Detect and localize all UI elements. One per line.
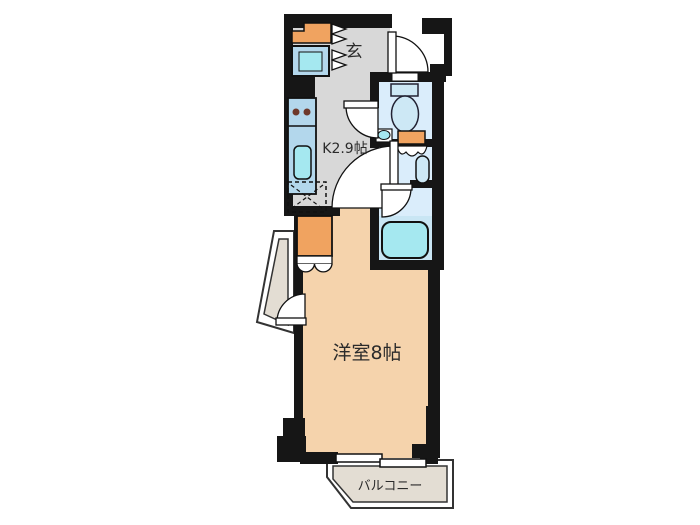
- floor-plan-canvas: 玄 K2.9帖 洋室8帖 バルコニー: [0, 0, 700, 525]
- entrance-door: [388, 32, 428, 73]
- water-heater: [416, 156, 429, 183]
- wall-right-upper: [432, 72, 444, 268]
- main-room-label: 洋室8帖: [332, 342, 401, 364]
- kitchen-label: K2.9帖: [322, 141, 367, 157]
- entrance-label: 玄: [346, 42, 363, 62]
- wall-right-lower: [426, 406, 440, 458]
- bathtub: [382, 222, 428, 258]
- storage-box: [292, 46, 329, 76]
- stove-burner: [293, 109, 300, 116]
- stove-burner: [304, 109, 311, 116]
- sink: [294, 146, 311, 179]
- floor-plan: 玄 K2.9帖 洋室8帖 バルコニー: [0, 0, 700, 525]
- wall-right-main: [428, 260, 440, 412]
- vanity-cabinet: [398, 131, 425, 144]
- wall-room-left-b: [294, 324, 303, 424]
- balcony-label: バルコニー: [358, 479, 423, 494]
- closet: [297, 216, 332, 272]
- wall-bottom-left-step: [283, 418, 305, 438]
- toilet-window: [392, 73, 418, 81]
- kitchen-counter: [288, 98, 316, 194]
- toilet: [391, 84, 419, 132]
- wall-bottom-a: [300, 452, 338, 464]
- vanity-sink: [397, 146, 427, 156]
